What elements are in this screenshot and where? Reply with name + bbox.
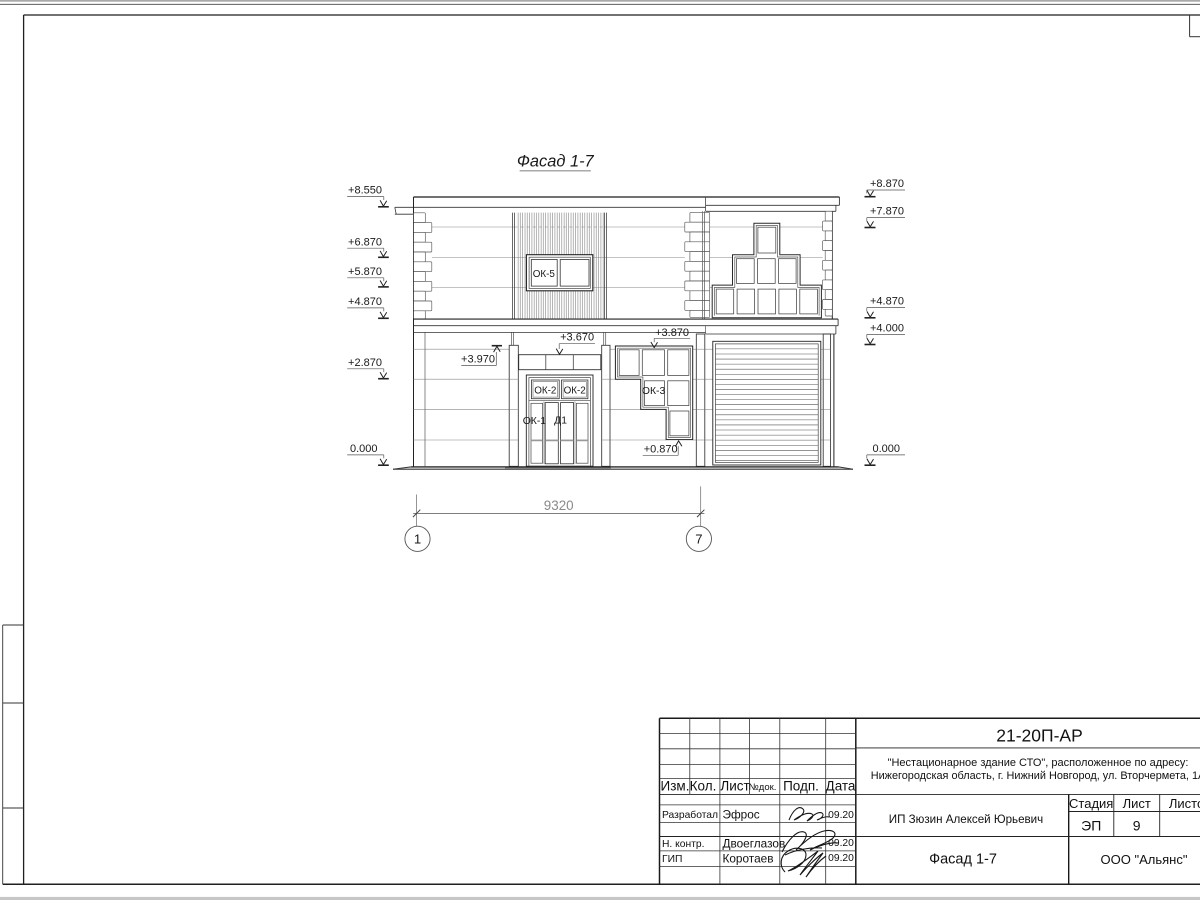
svg-text:Нижегородская область, г. Нижн: Нижегородская область, г. Нижний Новгоро…: [871, 770, 1200, 782]
svg-text:ООО "Альянс": ООО "Альянс": [1101, 852, 1188, 867]
svg-text:+8.550: +8.550: [348, 185, 382, 197]
svg-text:9320: 9320: [544, 498, 574, 513]
svg-text:ЭП: ЭП: [1081, 817, 1101, 833]
svg-text:Фасад 1-7: Фасад 1-7: [517, 152, 595, 170]
svg-text:09.20: 09.20: [828, 838, 854, 849]
svg-text:Двоеглазов: Двоеглазов: [723, 837, 786, 851]
svg-text:09.20: 09.20: [828, 853, 854, 864]
svg-text:+3.970: +3.970: [461, 354, 495, 366]
svg-text:"Нестационарное здание СТО", р: "Нестационарное здание СТО", расположенн…: [888, 757, 1189, 769]
svg-text:ОК-2: ОК-2: [534, 386, 556, 397]
svg-text:+7.870: +7.870: [870, 206, 904, 218]
svg-text:9: 9: [1133, 817, 1141, 833]
svg-text:+4.870: +4.870: [870, 296, 904, 308]
svg-text:+8.870: +8.870: [870, 178, 904, 190]
svg-text:ОК-2: ОК-2: [564, 386, 586, 397]
svg-text:Кол.: Кол.: [690, 779, 717, 794]
svg-text:Д1: Д1: [554, 415, 567, 426]
svg-text:1: 1: [414, 532, 421, 547]
svg-text:+3.870: +3.870: [655, 327, 689, 339]
svg-text:0.000: 0.000: [350, 443, 378, 455]
svg-text:7: 7: [695, 532, 702, 547]
svg-text:+0.870: +0.870: [644, 443, 678, 455]
svg-text:Лист: Лист: [720, 779, 749, 794]
svg-text:Листов: Листов: [1169, 796, 1200, 811]
svg-text:ГИП: ГИП: [662, 854, 682, 865]
svg-text:+6.870: +6.870: [348, 236, 382, 248]
svg-text:Стадия: Стадия: [1069, 796, 1113, 811]
svg-text:+3.670: +3.670: [560, 332, 594, 344]
svg-text:Фасад 1-7: Фасад 1-7: [929, 852, 997, 868]
svg-text:+4.870: +4.870: [348, 296, 382, 308]
svg-text:+5.870: +5.870: [348, 266, 382, 278]
svg-text:ОК-1: ОК-1: [523, 416, 547, 427]
svg-text:Подп.: Подп.: [783, 779, 819, 794]
svg-text:ИП Зюзин Алексей Юрьевич: ИП Зюзин Алексей Юрьевич: [889, 813, 1043, 826]
svg-text:№док.: №док.: [749, 782, 777, 793]
svg-text:21-20П-АР: 21-20П-АР: [996, 726, 1083, 746]
svg-text:+4.000: +4.000: [870, 322, 904, 334]
svg-text:0.000: 0.000: [873, 443, 901, 455]
svg-text:Разработал: Разработал: [662, 809, 718, 821]
svg-text:ОК-5: ОК-5: [533, 269, 556, 280]
svg-text:Лист: Лист: [1123, 796, 1151, 811]
svg-text:Коротаев: Коротаев: [723, 851, 774, 865]
svg-text:Изм.: Изм.: [661, 779, 690, 794]
svg-text:ОК-3: ОК-3: [642, 386, 666, 397]
svg-text:Дата: Дата: [826, 779, 856, 794]
svg-text:09.20: 09.20: [828, 810, 854, 821]
svg-text:Н. контр.: Н. контр.: [662, 839, 705, 850]
svg-text:Эфрос: Эфрос: [723, 807, 760, 821]
svg-text:+2.870: +2.870: [348, 357, 382, 369]
